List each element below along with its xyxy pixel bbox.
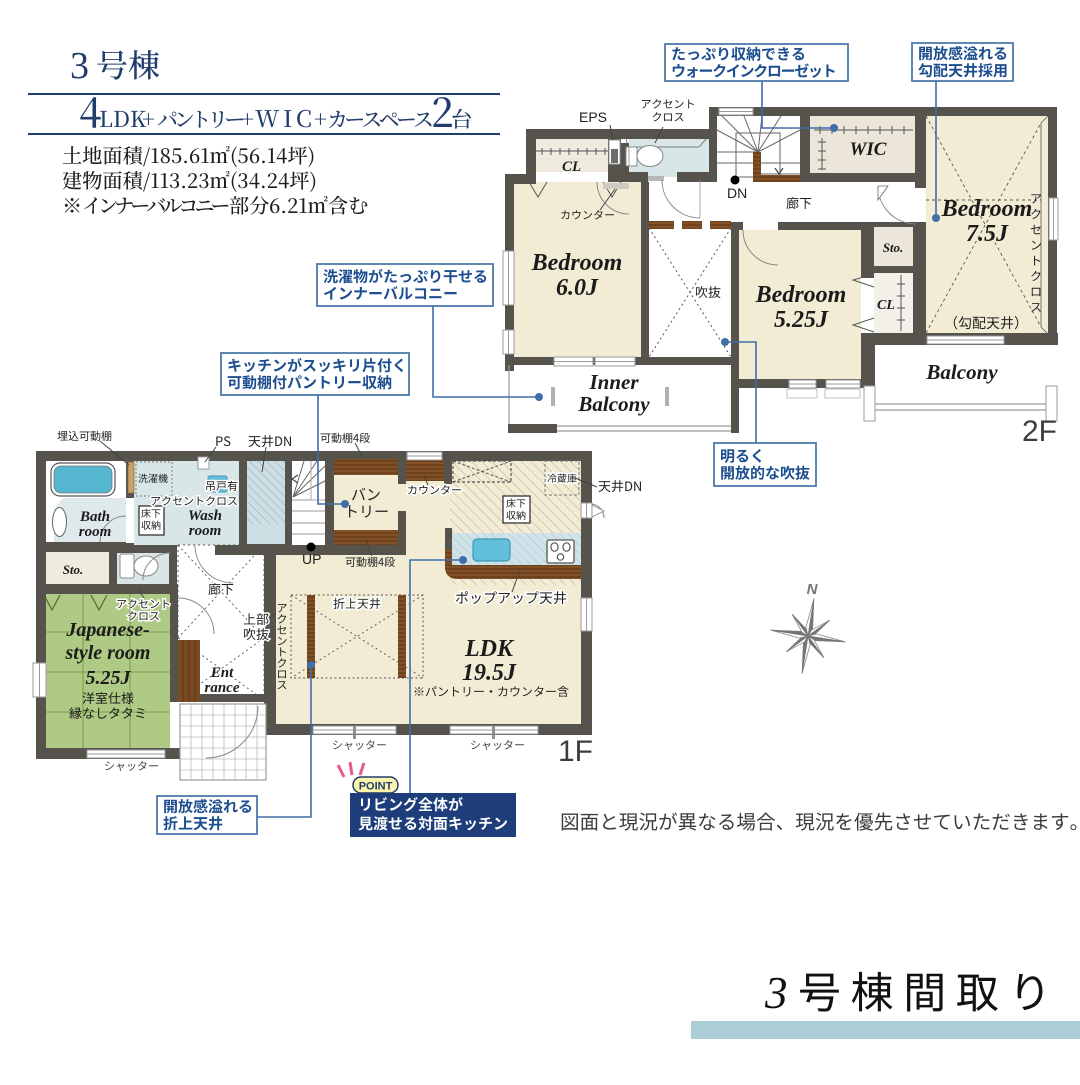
svg-text:7.5J: 7.5J	[966, 221, 1009, 247]
svg-text:Sto.: Sto.	[883, 240, 904, 255]
svg-text:N: N	[807, 581, 819, 598]
svg-text:Inner: Inner	[588, 370, 639, 394]
svg-text:2F: 2F	[1022, 415, 1057, 448]
svg-text:UP: UP	[302, 551, 321, 567]
svg-text:3: 3	[764, 968, 788, 1018]
svg-text:LDK: LDK	[464, 636, 515, 662]
svg-text:CL: CL	[562, 159, 581, 175]
svg-text:Bedroom: Bedroom	[941, 196, 1033, 222]
svg-text:room: room	[189, 523, 222, 539]
svg-text:3: 3	[70, 45, 89, 87]
svg-text:WIC: WIC	[850, 139, 887, 160]
svg-text:POINT: POINT	[359, 781, 393, 793]
svg-text:style room: style room	[65, 642, 151, 664]
svg-text:Japanese-: Japanese-	[65, 619, 149, 641]
svg-text:Balcony: Balcony	[925, 360, 998, 384]
svg-text:rance: rance	[205, 680, 240, 696]
svg-text:Sto.: Sto.	[63, 562, 84, 577]
svg-text:Balcony: Balcony	[577, 392, 650, 416]
svg-text:5.25J: 5.25J	[86, 667, 132, 689]
svg-text:1F: 1F	[558, 735, 593, 768]
svg-text:Bedroom: Bedroom	[531, 250, 623, 276]
svg-text:Bedroom: Bedroom	[755, 282, 847, 308]
svg-text:Wash: Wash	[188, 508, 222, 524]
svg-text:DN: DN	[727, 185, 747, 201]
svg-text:CL: CL	[877, 298, 895, 313]
svg-text:Bath: Bath	[79, 509, 110, 525]
svg-text:5.25J: 5.25J	[774, 307, 829, 333]
svg-text:EPS: EPS	[579, 109, 607, 125]
svg-text:6.0J: 6.0J	[556, 275, 599, 301]
svg-text:Ent: Ent	[210, 665, 234, 681]
svg-text:19.5J: 19.5J	[462, 660, 517, 686]
svg-text:room: room	[79, 524, 112, 540]
